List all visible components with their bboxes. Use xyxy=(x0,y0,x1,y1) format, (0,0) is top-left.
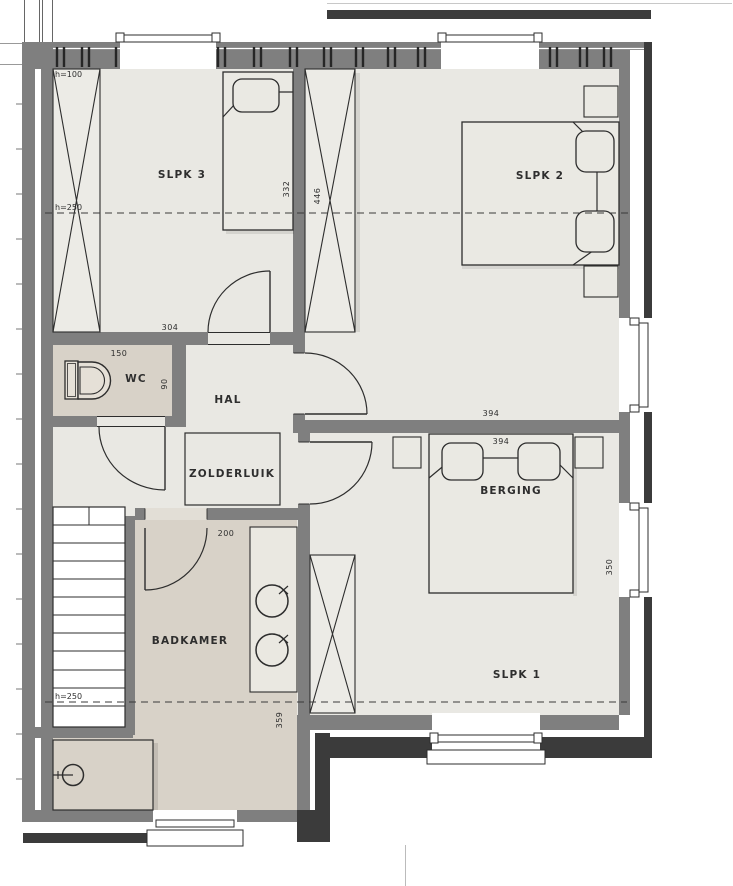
window-sash xyxy=(123,35,213,42)
room-label-slpk3: SLPK 3 xyxy=(158,169,206,181)
window-sash xyxy=(639,323,648,407)
room-label-slpk1: SLPK 1 xyxy=(493,669,541,681)
room-label-slpk2: SLPK 2 xyxy=(516,170,564,182)
window-sash xyxy=(445,35,535,42)
party-wall-lines-top xyxy=(25,0,53,42)
pillow xyxy=(576,131,614,172)
bed-single-slpk3 xyxy=(223,72,293,230)
wall-slpk3-slpk2 xyxy=(293,69,305,345)
wall-slpk2-slpk1 xyxy=(293,420,619,433)
wall-wc-east xyxy=(172,345,186,416)
wall-shower-north xyxy=(33,727,133,738)
window-sash xyxy=(437,735,535,742)
window-sill xyxy=(427,750,545,764)
window-sash xyxy=(156,820,234,827)
window-tab xyxy=(630,590,639,597)
opening-slpk1 xyxy=(298,442,310,504)
vanity xyxy=(250,527,297,692)
dim-label-90: 90 xyxy=(160,378,169,389)
room-label-hal: HAL xyxy=(214,394,241,406)
room-label-zolderluik: ZOLDERLUIK xyxy=(189,468,275,480)
window-opening xyxy=(120,42,216,69)
window-tab xyxy=(630,405,639,412)
window-sash xyxy=(639,508,648,592)
window-tab xyxy=(630,503,639,510)
shadow xyxy=(355,73,360,332)
dim-label-350: 350 xyxy=(605,559,614,576)
nightstand xyxy=(393,437,421,468)
opening-badkamer xyxy=(145,508,207,520)
window-top-slpk2 xyxy=(438,33,542,69)
pillow xyxy=(518,443,560,480)
window-tab xyxy=(630,318,639,325)
pillow xyxy=(576,211,614,252)
opening-slpk2 xyxy=(293,353,305,414)
wall-hal-slpk2-north xyxy=(293,345,305,353)
wall-badkamer-north-west xyxy=(135,508,145,520)
window-tab xyxy=(438,33,446,42)
floorplan-drawing: h=100 h=250 h=250 SLPK 3 SLPK 2 SLPK 1 W… xyxy=(0,0,733,886)
pillow xyxy=(233,79,279,112)
window-tab xyxy=(116,33,124,42)
opening-wc xyxy=(97,416,165,427)
wall-cavity-left xyxy=(35,69,41,810)
shower-tray xyxy=(53,740,153,810)
room-label-berging: BERGING xyxy=(480,485,542,497)
wall-bottom-outer-west xyxy=(330,737,432,758)
boundary-ticks-left-top xyxy=(0,44,22,65)
pillow xyxy=(442,443,483,480)
wall-bottom-inner-east xyxy=(540,715,619,730)
toilet-icon xyxy=(65,361,111,399)
dim-label-332: 332 xyxy=(282,181,291,198)
room-label-wc: WC xyxy=(125,373,147,385)
wall-bottom-inner-west xyxy=(310,715,432,730)
wall-hal-slpk1-north xyxy=(298,433,310,442)
window-right-upper xyxy=(619,318,658,412)
toilet-tank xyxy=(65,361,78,399)
nightstand xyxy=(584,86,618,117)
dim-label-394-top: 394 xyxy=(483,409,500,418)
nightstand xyxy=(575,437,603,468)
vanity-counter xyxy=(250,527,297,692)
window-tab xyxy=(534,33,542,42)
wall-hal-slpk1-south xyxy=(298,504,310,715)
window-tab xyxy=(430,733,438,743)
window-opening xyxy=(441,42,539,69)
wall-extension-corner-dark xyxy=(297,810,330,842)
left-wall-joint-ticks xyxy=(16,104,22,779)
window-sill xyxy=(147,830,243,846)
height-label-h250-upper: h=250 xyxy=(55,203,82,212)
dim-label-304: 304 xyxy=(162,323,179,332)
shadow xyxy=(153,743,158,810)
wall-wc-south-west xyxy=(53,416,97,427)
height-label-h100: h=100 xyxy=(55,70,82,79)
neighbour-roof-bar-top xyxy=(327,10,651,19)
window-right-lower xyxy=(619,503,658,597)
window-tab xyxy=(212,33,220,42)
wardrobe-slpk1 xyxy=(310,555,355,713)
window-bottom-slpk1 xyxy=(427,713,545,764)
dim-label-446: 446 xyxy=(313,188,322,205)
dim-label-150: 150 xyxy=(111,349,128,358)
wall-slpk3-south-west xyxy=(53,332,208,345)
dim-label-200: 200 xyxy=(218,529,235,538)
window-top-slpk3 xyxy=(116,33,220,69)
window-tab xyxy=(534,733,542,743)
wall-extension-east-outer xyxy=(315,733,330,810)
wall-bottom-outer-east xyxy=(540,737,652,758)
opening-slpk3 xyxy=(208,332,270,345)
wall-hal-slpk2-south xyxy=(293,414,305,420)
neighbour-roof-bar-bottom xyxy=(23,833,153,843)
height-label-h250-lower: h=250 xyxy=(55,692,82,701)
wall-cavity-topright xyxy=(630,50,644,69)
nightstand xyxy=(584,266,618,297)
dim-label-394-bed: 394 xyxy=(493,437,510,446)
window-bottom-badkamer xyxy=(147,810,243,846)
dim-label-359: 359 xyxy=(275,712,284,729)
room-label-badkamer: BADKAMER xyxy=(152,635,228,647)
wall-extension-east-inner xyxy=(297,715,310,810)
wall-slpk3-south-east xyxy=(270,332,305,345)
floorplan-canvas: h=100 h=250 h=250 SLPK 3 SLPK 2 SLPK 1 W… xyxy=(0,0,733,886)
wall-badkamer-north-east xyxy=(207,508,298,520)
wardrobe-slpk3 xyxy=(53,69,100,332)
wall-wc-south-east xyxy=(165,416,186,427)
